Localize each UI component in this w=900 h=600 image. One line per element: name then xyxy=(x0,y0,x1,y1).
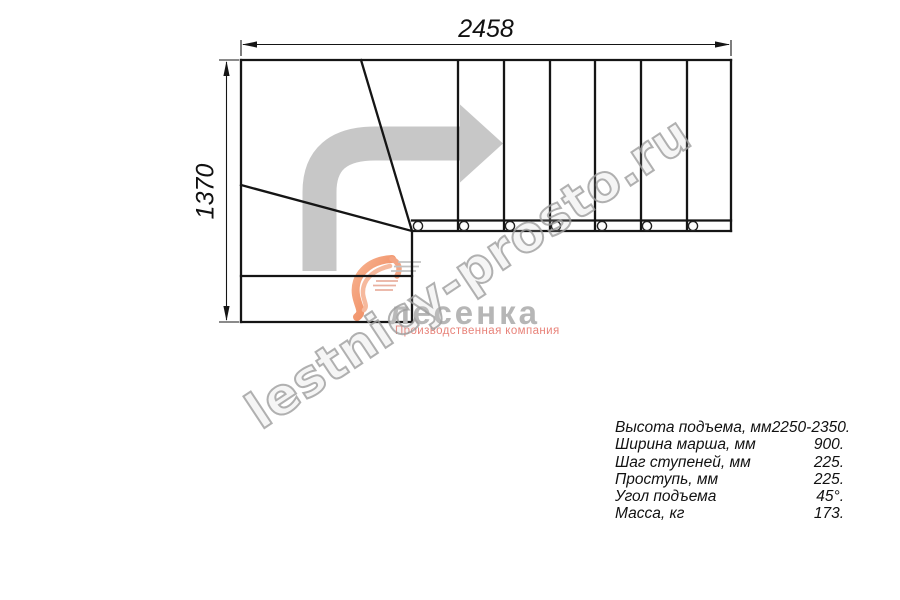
spec-label: Угол подъема xyxy=(615,488,716,505)
bolt-icon xyxy=(597,221,606,230)
spec-value: 173. xyxy=(814,505,844,522)
bolt-icon xyxy=(459,221,468,230)
staircase-drawing-page: 2458 1370 лесенка Производственная компа… xyxy=(0,0,900,600)
bolt-icon xyxy=(642,221,651,230)
logo-speed-lines-2 xyxy=(373,281,398,290)
spec-row: Шаг ступеней, мм225. xyxy=(615,454,844,471)
spec-table: Высота подъема, мм2250-2350.Ширина марша… xyxy=(615,419,844,523)
bolt-icon xyxy=(505,221,514,230)
spec-row: Проступь, мм225. xyxy=(615,471,844,488)
spec-label: Ширина марша, мм xyxy=(615,436,756,453)
spec-label: Высота подъема, мм xyxy=(615,419,772,436)
bolt-circles xyxy=(413,221,697,230)
spec-row: Ширина марша, мм900. xyxy=(615,436,844,453)
spec-row: Высота подъема, мм2250-2350. xyxy=(615,419,844,436)
bolt-icon xyxy=(551,221,560,230)
bolt-icon xyxy=(413,221,422,230)
spec-label: Проступь, мм xyxy=(615,471,718,488)
spec-value: 225. xyxy=(814,454,844,471)
top-dimension-label: 2458 xyxy=(446,15,526,44)
bolt-icon xyxy=(688,221,697,230)
spec-row: Угол подъема45°. xyxy=(615,488,844,505)
spec-value: 900. xyxy=(814,436,844,453)
spec-label: Масса, кг xyxy=(615,505,684,522)
left-dimension-line xyxy=(219,60,239,322)
spec-value: 45°. xyxy=(816,488,844,505)
spec-value: 2250-2350. xyxy=(772,419,850,436)
spec-row: Масса, кг173. xyxy=(615,505,844,522)
spec-value: 225. xyxy=(814,471,844,488)
logo-tagline: Производственная компания xyxy=(395,325,560,337)
left-dimension-label: 1370 xyxy=(192,162,221,222)
spec-label: Шаг ступеней, мм xyxy=(615,454,751,471)
